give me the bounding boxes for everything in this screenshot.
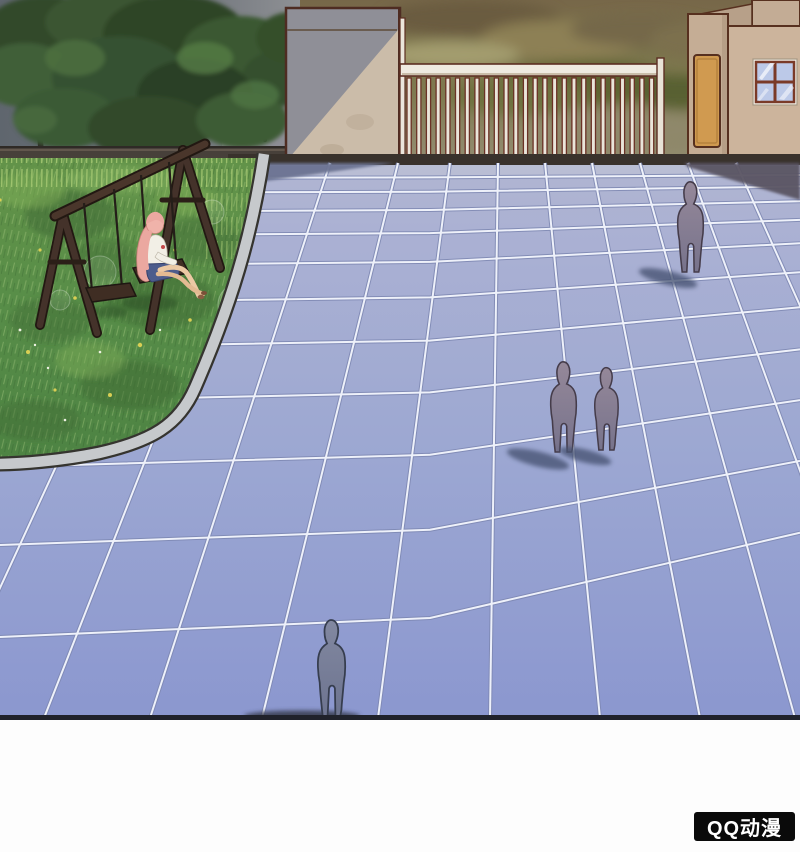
door <box>694 55 720 147</box>
gate-left-post <box>400 18 405 160</box>
trees-area <box>0 0 328 170</box>
wall-pillar <box>284 8 400 166</box>
tree-foliage <box>0 0 328 160</box>
comic-panel <box>0 0 800 720</box>
window-icon <box>753 59 797 105</box>
panel-border <box>0 715 800 720</box>
gate-right-post <box>657 58 664 162</box>
comic-page: QQ动漫 <box>0 0 800 852</box>
building <box>688 0 800 164</box>
qq-comics-watermark: QQ动漫 <box>694 812 795 841</box>
